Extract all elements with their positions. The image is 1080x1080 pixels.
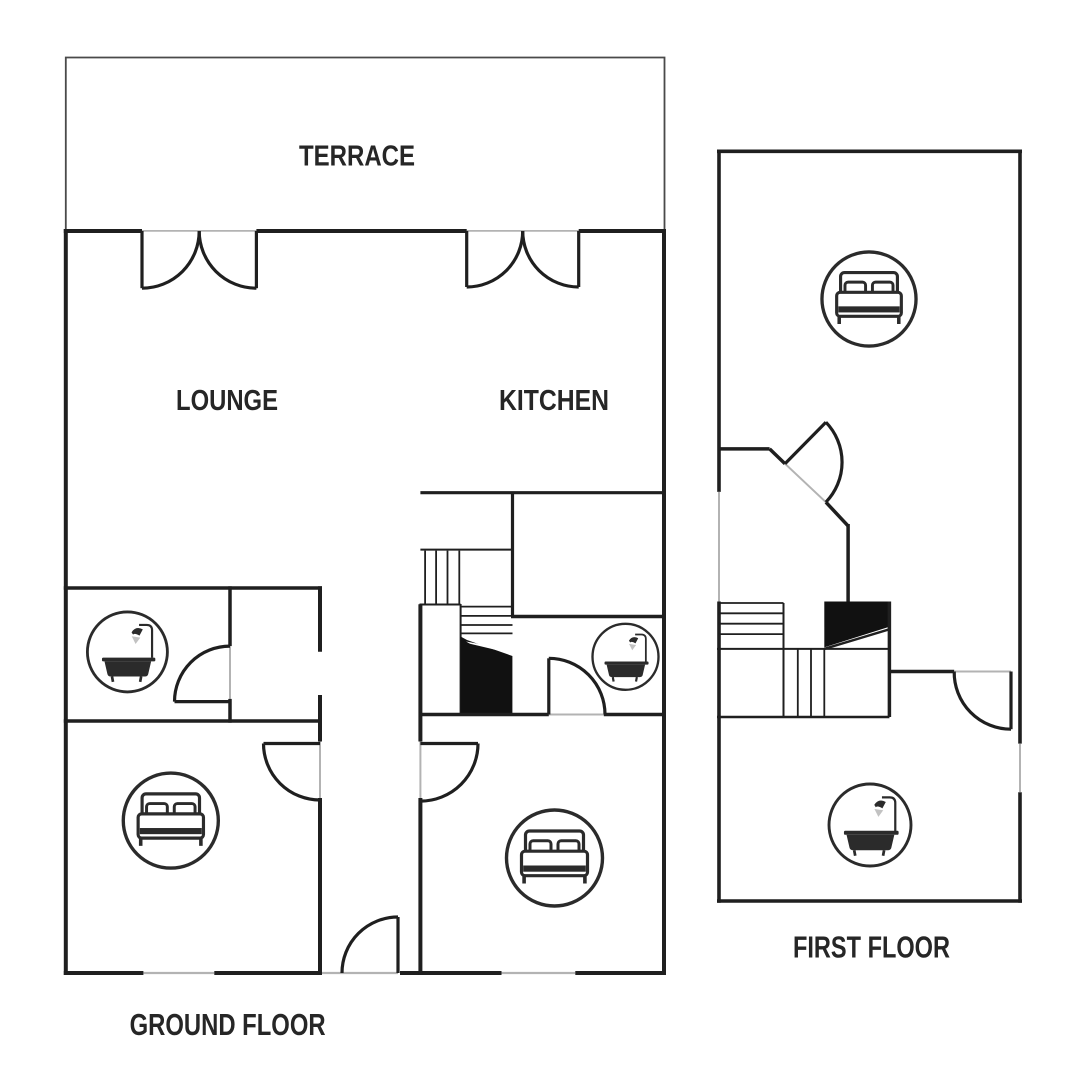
svg-text:LOUNGE: LOUNGE	[176, 385, 278, 417]
svg-text:GROUND FLOOR: GROUND FLOOR	[130, 1007, 326, 1042]
svg-text:KITCHEN: KITCHEN	[499, 385, 609, 417]
svg-text:FIRST FLOOR: FIRST FLOOR	[793, 930, 950, 965]
svg-text:TERRACE: TERRACE	[299, 141, 415, 173]
